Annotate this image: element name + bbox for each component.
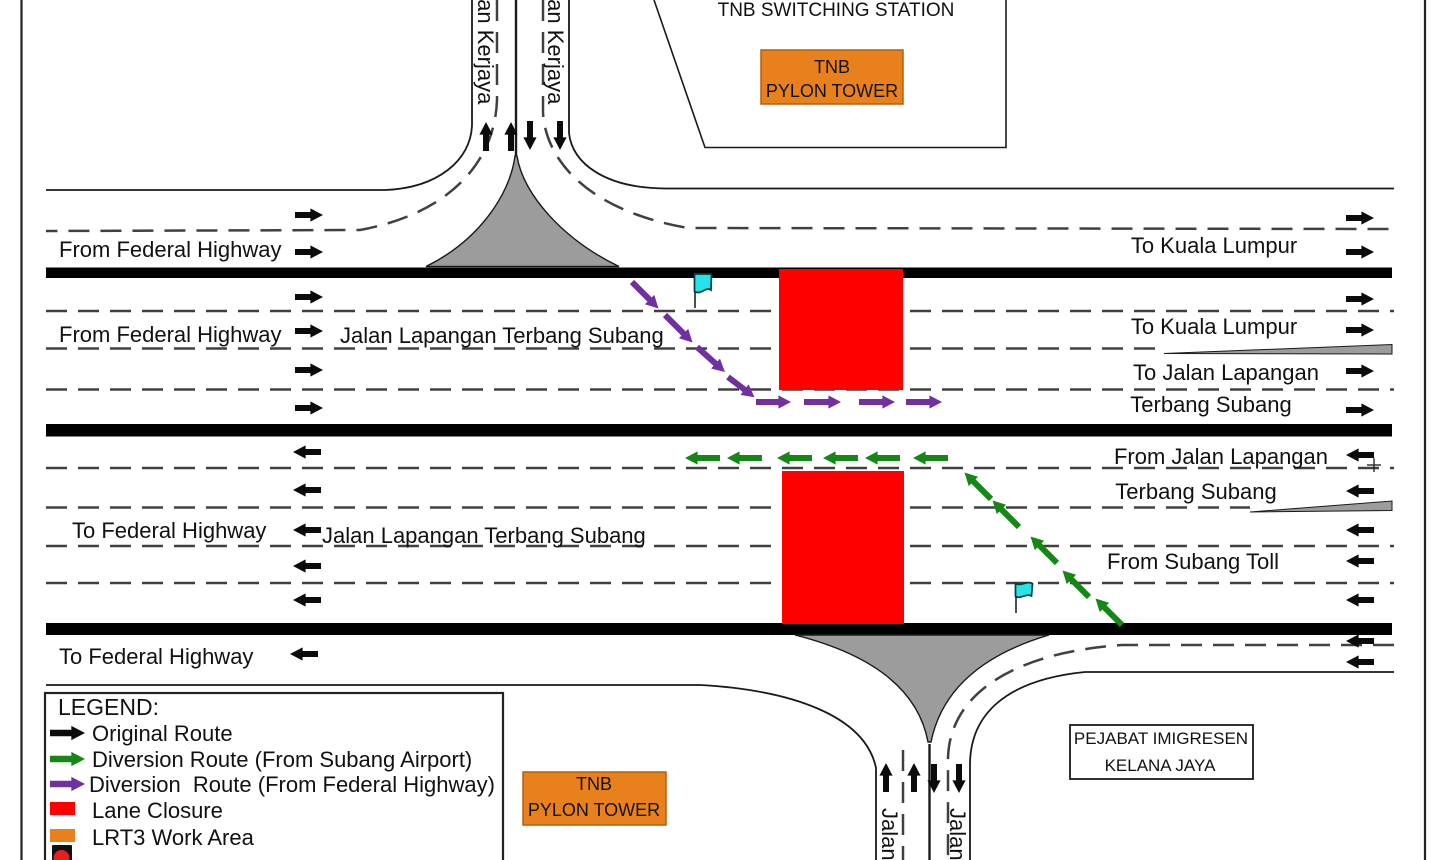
svg-text:PYLON TOWER: PYLON TOWER <box>528 800 660 820</box>
svg-text:Diversion Route (From Federal: Diversion Route (From Federal Highway) <box>89 772 495 797</box>
svg-text:PYLON TOWER: PYLON TOWER <box>766 81 898 101</box>
svg-text:Terbang Subang: Terbang Subang <box>1130 392 1291 417</box>
svg-text:From Subang Toll: From Subang Toll <box>1107 549 1279 574</box>
svg-text:Jalan Kerjaya: Jalan Kerjaya <box>473 0 498 105</box>
svg-text:LEGEND:: LEGEND: <box>58 694 159 720</box>
svg-text:TNB: TNB <box>814 57 850 77</box>
svg-text:Jalan Kerjaya: Jalan Kerjaya <box>945 808 970 860</box>
svg-text:From Federal Highway: From Federal Highway <box>59 237 282 262</box>
svg-text:To Kuala Lumpur: To Kuala Lumpur <box>1131 233 1297 258</box>
svg-text:To Federal Highway: To Federal Highway <box>59 644 253 669</box>
svg-text:TNB: TNB <box>576 774 612 794</box>
svg-text:Terbang Subang: Terbang Subang <box>1115 479 1276 504</box>
svg-text:Jalan Kerjaya: Jalan Kerjaya <box>543 0 568 105</box>
svg-text:From Jalan Lapangan: From Jalan Lapangan <box>1114 444 1328 469</box>
svg-text:To Kuala Lumpur: To Kuala Lumpur <box>1131 314 1297 339</box>
svg-text:KELANA JAYA: KELANA JAYA <box>1105 756 1217 775</box>
svg-text:Original Route: Original Route <box>92 721 233 746</box>
svg-text:Jalan Lapangan Terbang Subang: Jalan Lapangan Terbang Subang <box>340 323 664 348</box>
svg-text:To Jalan Lapangan: To Jalan Lapangan <box>1133 360 1319 385</box>
svg-text:Lane Closure: Lane Closure <box>92 798 223 823</box>
svg-text:Jalan Kerjaya: Jalan Kerjaya <box>877 808 902 860</box>
svg-text:TNB SWITCHING STATION: TNB SWITCHING STATION <box>718 0 955 21</box>
svg-text:LRT3 Work Area: LRT3 Work Area <box>92 825 255 850</box>
svg-text:Diversion Route (From Subang A: Diversion Route (From Subang Airport) <box>92 747 472 772</box>
svg-text:Jalan Lapangan Terbang Subang: Jalan Lapangan Terbang Subang <box>322 523 646 548</box>
svg-text:PEJABAT IMIGRESEN: PEJABAT IMIGRESEN <box>1074 729 1248 748</box>
svg-text:To Federal Highway: To Federal Highway <box>72 518 266 543</box>
svg-text:From Federal Highway: From Federal Highway <box>59 322 282 347</box>
